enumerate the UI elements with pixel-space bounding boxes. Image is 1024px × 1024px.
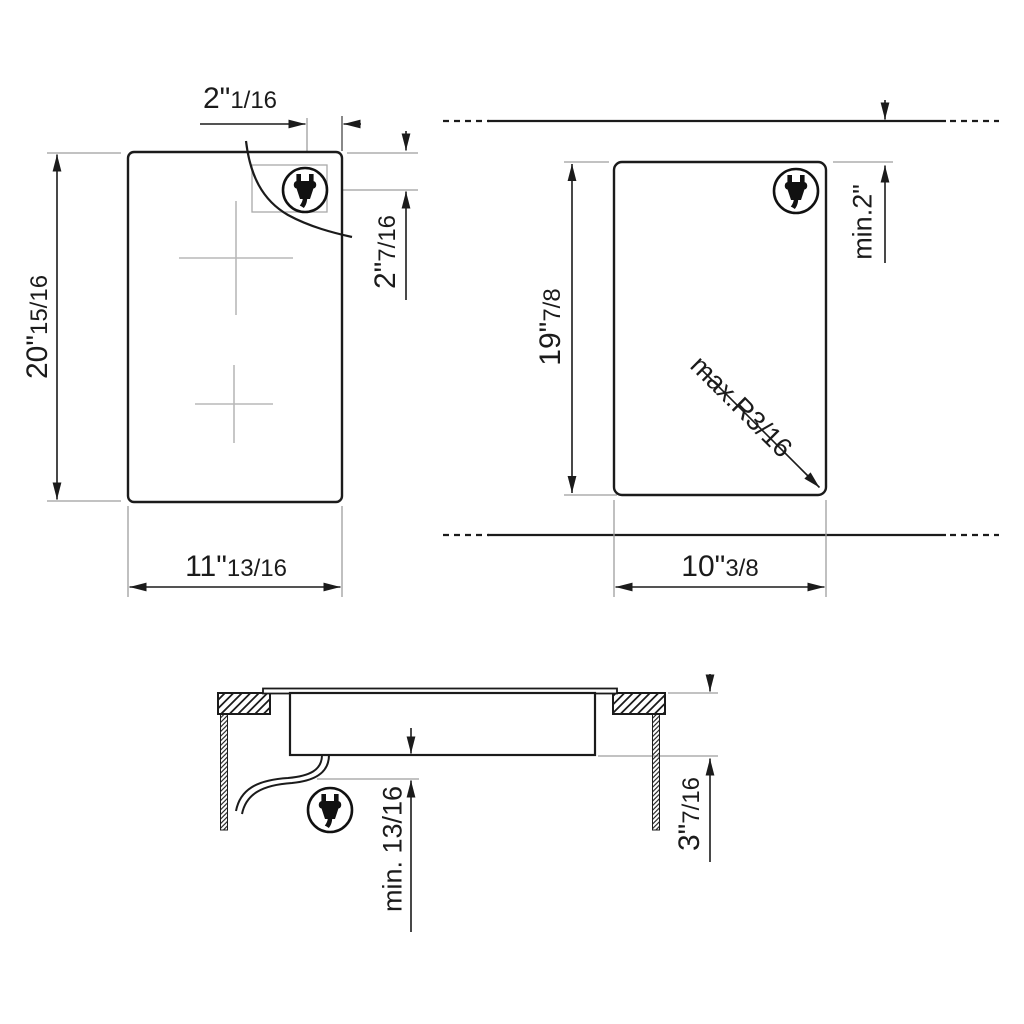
dim-label-rear-clearance: min.2" bbox=[850, 184, 877, 260]
dim-value: 11" bbox=[185, 550, 227, 583]
plug-icon bbox=[308, 788, 352, 832]
dim-label-recess-depth: 3"7/16 bbox=[675, 777, 705, 851]
dim-fraction: 7/8 bbox=[539, 288, 566, 321]
dim-label-hob-width: 11"13/16 bbox=[185, 552, 287, 582]
dim-fraction: 13/16 bbox=[227, 555, 287, 582]
dim-label-cutout-height: 19"7/8 bbox=[536, 288, 566, 365]
cabinet-wall-right bbox=[653, 714, 660, 830]
dim-label-cutout-width: 10"3/8 bbox=[681, 552, 758, 582]
top-view bbox=[47, 116, 418, 597]
dim-label-bottom-clearance: min. 13/16 bbox=[380, 786, 407, 912]
dim-value: 2" bbox=[369, 262, 402, 289]
dim-label-plug-offset-horizontal: 2"1/16 bbox=[203, 84, 277, 114]
dim-fraction: 3/8 bbox=[725, 555, 758, 582]
dim-label-plug-offset-vertical: 2"7/16 bbox=[371, 215, 401, 289]
hob-body-section bbox=[290, 693, 595, 755]
dim-value: 20" bbox=[21, 335, 54, 379]
section-view bbox=[218, 674, 718, 932]
dim-fraction: 7/16 bbox=[374, 215, 401, 262]
dim-value: 10" bbox=[681, 550, 725, 583]
dim-label-hob-height: 20"15/16 bbox=[23, 275, 53, 379]
plug-icon bbox=[283, 168, 327, 212]
plug-icon bbox=[774, 169, 818, 213]
dim-fraction: 1/16 bbox=[230, 87, 277, 114]
dim-fraction: 7/16 bbox=[678, 777, 705, 824]
worktop-section-right bbox=[613, 693, 665, 714]
cabinet-wall-left bbox=[221, 714, 228, 830]
worktop-section-left bbox=[218, 693, 270, 714]
dim-value: 3" bbox=[673, 824, 706, 851]
dim-value: 19" bbox=[534, 322, 567, 366]
drawing-svg bbox=[0, 0, 1024, 1024]
dim-value: 2" bbox=[203, 82, 230, 115]
technical-drawing-canvas: 2"1/16 2"7/16 20"15/16 11"13/16 19"7/8 m… bbox=[0, 0, 1024, 1024]
cutout-view bbox=[443, 100, 999, 597]
dim-fraction: 15/16 bbox=[26, 275, 53, 335]
